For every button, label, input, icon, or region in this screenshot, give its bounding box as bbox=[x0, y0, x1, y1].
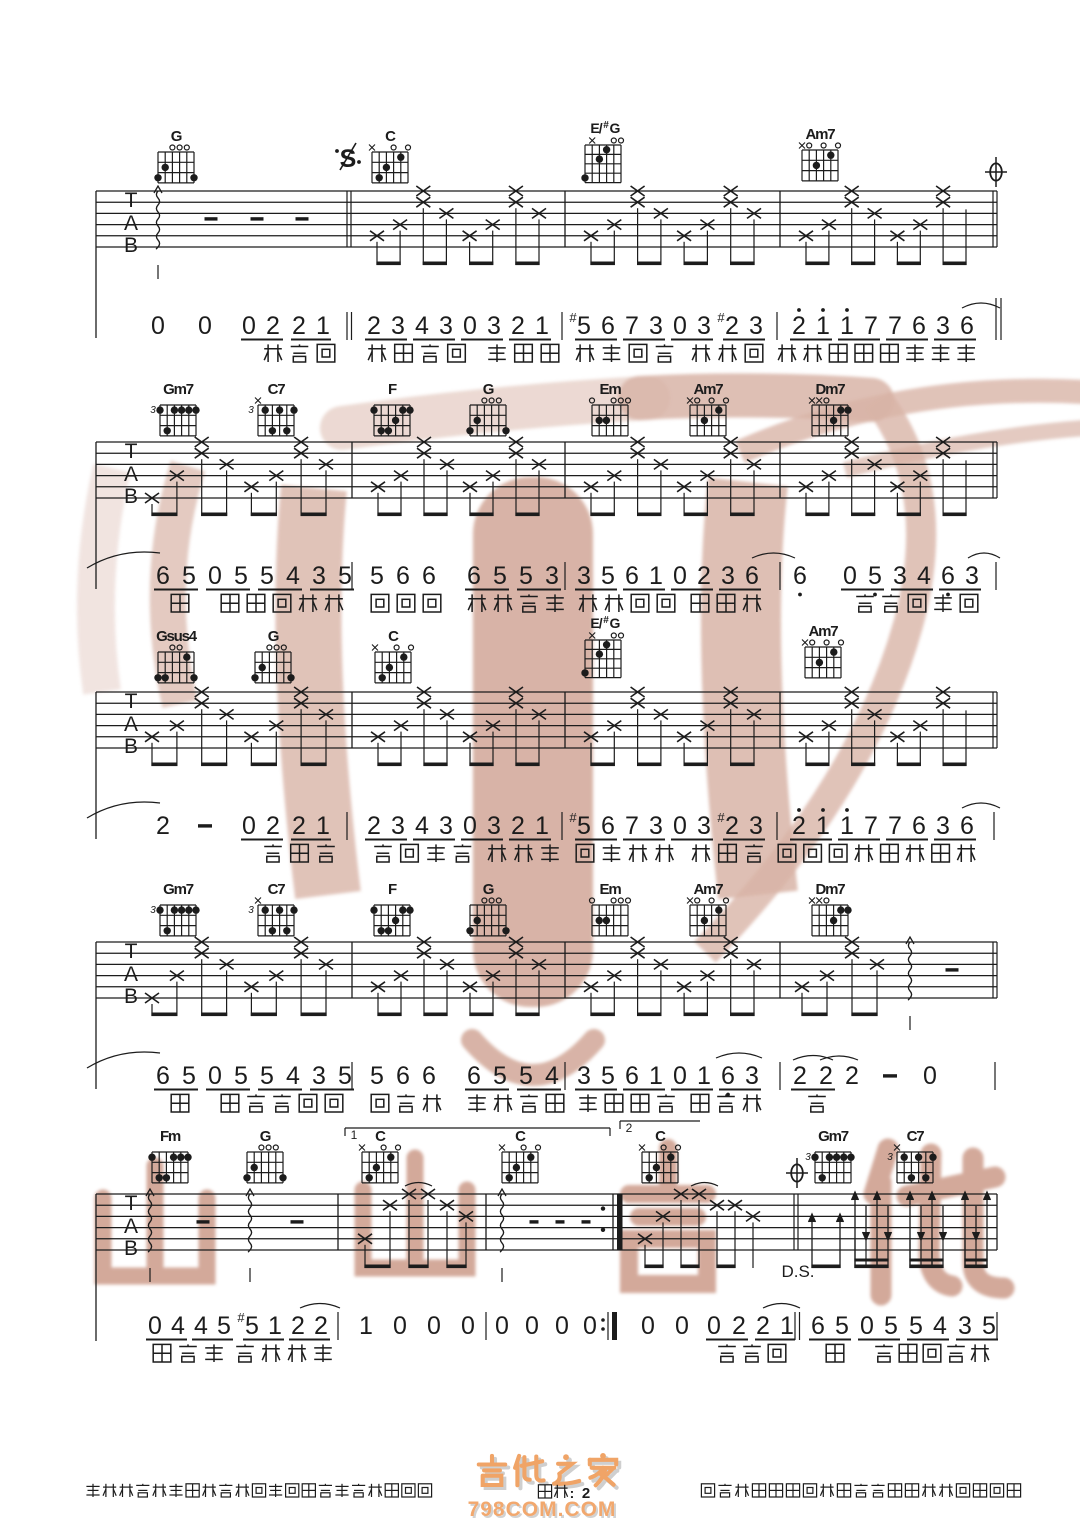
svg-text:0: 0 bbox=[242, 312, 256, 340]
svg-text:T: T bbox=[125, 440, 138, 463]
svg-text:6: 6 bbox=[912, 312, 926, 340]
svg-text:3: 3 bbox=[649, 812, 663, 840]
svg-text:Am7: Am7 bbox=[694, 381, 724, 398]
svg-text:#: # bbox=[237, 1310, 245, 1325]
svg-text:3: 3 bbox=[391, 312, 405, 340]
svg-text:3: 3 bbox=[487, 812, 501, 840]
svg-text:3: 3 bbox=[749, 812, 763, 840]
svg-text:0: 0 bbox=[463, 812, 477, 840]
svg-text:3: 3 bbox=[745, 1062, 759, 1090]
svg-text:3: 3 bbox=[150, 405, 156, 416]
svg-text:D.S.: D.S. bbox=[781, 1262, 814, 1281]
svg-text:5: 5 bbox=[182, 1062, 196, 1090]
svg-text:T: T bbox=[125, 940, 138, 963]
svg-text:5: 5 bbox=[909, 1312, 923, 1340]
svg-text:6: 6 bbox=[601, 312, 615, 340]
svg-text:1: 1 bbox=[535, 812, 549, 840]
svg-text:2: 2 bbox=[697, 562, 711, 590]
svg-text:F: F bbox=[388, 381, 397, 398]
svg-text:2: 2 bbox=[732, 1312, 746, 1340]
svg-text:3: 3 bbox=[312, 562, 326, 590]
svg-text:5: 5 bbox=[234, 1062, 248, 1090]
svg-text:1: 1 bbox=[535, 312, 549, 340]
svg-text:E/: E/ bbox=[590, 120, 602, 136]
svg-text:G: G bbox=[260, 1128, 271, 1145]
svg-text:0: 0 bbox=[393, 1312, 407, 1340]
svg-text:6: 6 bbox=[467, 1062, 481, 1090]
svg-text:4: 4 bbox=[194, 1312, 208, 1340]
svg-text:2: 2 bbox=[793, 1062, 807, 1090]
svg-text:4: 4 bbox=[286, 562, 300, 590]
svg-text:2: 2 bbox=[511, 312, 525, 340]
svg-text:6: 6 bbox=[721, 1062, 735, 1090]
svg-text:C: C bbox=[655, 1128, 666, 1145]
svg-text:3: 3 bbox=[887, 1152, 893, 1163]
svg-text:6: 6 bbox=[793, 562, 807, 590]
svg-text:5: 5 bbox=[234, 562, 248, 590]
svg-text:0: 0 bbox=[673, 312, 687, 340]
svg-text:4: 4 bbox=[415, 312, 429, 340]
svg-text:C7: C7 bbox=[268, 881, 286, 898]
svg-text:5: 5 bbox=[370, 1062, 384, 1090]
svg-text:3: 3 bbox=[312, 1062, 326, 1090]
svg-text:1: 1 bbox=[840, 812, 854, 840]
svg-text:7: 7 bbox=[888, 812, 902, 840]
svg-text:Fm: Fm bbox=[160, 1128, 181, 1145]
svg-text:G: G bbox=[483, 881, 494, 898]
svg-text:1: 1 bbox=[359, 1312, 373, 1340]
svg-text:G: G bbox=[171, 128, 182, 145]
svg-text:3: 3 bbox=[936, 312, 950, 340]
svg-text:Em: Em bbox=[600, 881, 622, 898]
svg-text:2: 2 bbox=[266, 812, 280, 840]
svg-text:2: 2 bbox=[626, 1121, 633, 1135]
svg-text:5: 5 bbox=[868, 562, 882, 590]
svg-text:5: 5 bbox=[338, 562, 352, 590]
svg-text:#: # bbox=[717, 310, 725, 325]
svg-text:0: 0 bbox=[641, 1312, 655, 1340]
svg-text:0: 0 bbox=[427, 1312, 441, 1340]
svg-text:3: 3 bbox=[749, 312, 763, 340]
svg-text:Gm7: Gm7 bbox=[163, 381, 194, 398]
svg-text:3: 3 bbox=[965, 562, 979, 590]
svg-text:4: 4 bbox=[545, 1062, 559, 1090]
svg-text:4: 4 bbox=[933, 1312, 947, 1340]
svg-text:3: 3 bbox=[150, 905, 156, 916]
svg-text:0: 0 bbox=[923, 1062, 937, 1090]
svg-text:#: # bbox=[569, 310, 577, 325]
svg-text:1: 1 bbox=[816, 312, 830, 340]
svg-text:Gm7: Gm7 bbox=[163, 881, 194, 898]
svg-text:6: 6 bbox=[422, 562, 436, 590]
svg-text:6: 6 bbox=[625, 562, 639, 590]
svg-text:1: 1 bbox=[816, 812, 830, 840]
svg-text:Dm7: Dm7 bbox=[816, 881, 846, 898]
svg-text:4: 4 bbox=[171, 1312, 185, 1340]
svg-text:3: 3 bbox=[697, 812, 711, 840]
svg-text:5: 5 bbox=[245, 1312, 259, 1340]
svg-text:2: 2 bbox=[511, 812, 525, 840]
svg-text:5: 5 bbox=[217, 1312, 231, 1340]
svg-text:F: F bbox=[388, 881, 397, 898]
svg-text:G: G bbox=[483, 381, 494, 398]
svg-text:T: T bbox=[125, 1192, 138, 1215]
svg-text:0: 0 bbox=[673, 562, 687, 590]
svg-text:0: 0 bbox=[583, 1312, 597, 1340]
svg-text:5: 5 bbox=[519, 1062, 533, 1090]
svg-text:5: 5 bbox=[493, 562, 507, 590]
svg-text:2: 2 bbox=[291, 1312, 305, 1340]
svg-text:2: 2 bbox=[367, 312, 381, 340]
svg-text:A: A bbox=[124, 463, 138, 486]
svg-text:#: # bbox=[569, 810, 577, 825]
svg-text:A: A bbox=[124, 963, 138, 986]
svg-text:0: 0 bbox=[843, 562, 857, 590]
svg-text:Em: Em bbox=[600, 381, 622, 398]
svg-text:3: 3 bbox=[893, 562, 907, 590]
svg-text:S: S bbox=[340, 145, 357, 173]
svg-text:0: 0 bbox=[208, 1062, 222, 1090]
svg-text:2: 2 bbox=[845, 1062, 859, 1090]
svg-text:2: 2 bbox=[725, 312, 739, 340]
svg-text:C7: C7 bbox=[268, 381, 286, 398]
svg-text:#: # bbox=[603, 615, 609, 626]
svg-text:3: 3 bbox=[649, 312, 663, 340]
svg-text:Am7: Am7 bbox=[809, 623, 839, 640]
svg-text:5: 5 bbox=[577, 812, 591, 840]
svg-text:6: 6 bbox=[912, 812, 926, 840]
svg-text:3: 3 bbox=[487, 312, 501, 340]
svg-text:6: 6 bbox=[625, 1062, 639, 1090]
svg-text:Am7: Am7 bbox=[694, 881, 724, 898]
svg-text:5: 5 bbox=[370, 562, 384, 590]
svg-text:3: 3 bbox=[577, 1062, 591, 1090]
svg-text:0: 0 bbox=[673, 812, 687, 840]
svg-text:B: B bbox=[124, 985, 138, 1008]
svg-text:5: 5 bbox=[519, 562, 533, 590]
svg-text:5: 5 bbox=[493, 1062, 507, 1090]
svg-text:3: 3 bbox=[958, 1312, 972, 1340]
svg-text:2: 2 bbox=[156, 812, 170, 840]
svg-text:3: 3 bbox=[805, 1152, 811, 1163]
svg-text:5: 5 bbox=[601, 1062, 615, 1090]
svg-text:G: G bbox=[610, 120, 621, 136]
svg-text:Dm7: Dm7 bbox=[816, 381, 846, 398]
svg-text:0: 0 bbox=[208, 562, 222, 590]
svg-text:3: 3 bbox=[439, 812, 453, 840]
svg-text:7: 7 bbox=[625, 312, 639, 340]
svg-text:1: 1 bbox=[316, 312, 330, 340]
svg-text:0: 0 bbox=[555, 1312, 569, 1340]
svg-text:2: 2 bbox=[792, 812, 806, 840]
svg-text:1: 1 bbox=[268, 1312, 282, 1340]
svg-text:3: 3 bbox=[248, 905, 254, 916]
svg-text:6: 6 bbox=[156, 562, 170, 590]
svg-text:7: 7 bbox=[864, 812, 878, 840]
svg-text:6: 6 bbox=[396, 1062, 410, 1090]
svg-text:T: T bbox=[125, 690, 138, 713]
svg-text:7: 7 bbox=[625, 812, 639, 840]
svg-text:6: 6 bbox=[960, 812, 974, 840]
svg-text:G: G bbox=[610, 615, 621, 631]
svg-text:2: 2 bbox=[314, 1312, 328, 1340]
svg-text:C: C bbox=[375, 1128, 386, 1145]
svg-text:B: B bbox=[124, 1237, 138, 1260]
svg-text:E/: E/ bbox=[590, 615, 602, 631]
svg-text:1: 1 bbox=[351, 1128, 358, 1142]
svg-text:1: 1 bbox=[697, 1062, 711, 1090]
svg-text:3: 3 bbox=[721, 562, 735, 590]
svg-text:C: C bbox=[388, 628, 399, 645]
svg-text:0: 0 bbox=[707, 1312, 721, 1340]
svg-text:4: 4 bbox=[286, 1062, 300, 1090]
svg-text:6: 6 bbox=[745, 562, 759, 590]
svg-text:6: 6 bbox=[396, 562, 410, 590]
svg-text:5: 5 bbox=[577, 312, 591, 340]
svg-text:3: 3 bbox=[697, 312, 711, 340]
svg-text:5: 5 bbox=[338, 1062, 352, 1090]
svg-text:0: 0 bbox=[860, 1312, 874, 1340]
svg-text:5: 5 bbox=[260, 1062, 274, 1090]
svg-text:A: A bbox=[124, 713, 138, 736]
svg-text:B: B bbox=[124, 234, 138, 257]
svg-text:0: 0 bbox=[461, 1312, 475, 1340]
svg-text:#: # bbox=[603, 120, 609, 131]
svg-text:5: 5 bbox=[182, 562, 196, 590]
svg-text:5: 5 bbox=[260, 562, 274, 590]
svg-text:Gm7: Gm7 bbox=[818, 1128, 849, 1145]
svg-text:2: 2 bbox=[819, 1062, 833, 1090]
svg-text:5: 5 bbox=[835, 1312, 849, 1340]
svg-text:6: 6 bbox=[960, 312, 974, 340]
svg-text:3: 3 bbox=[391, 812, 405, 840]
svg-text:2: 2 bbox=[725, 812, 739, 840]
svg-text:C7: C7 bbox=[907, 1128, 925, 1145]
svg-text:2: 2 bbox=[292, 312, 306, 340]
svg-text:1: 1 bbox=[649, 562, 663, 590]
svg-text:5: 5 bbox=[601, 562, 615, 590]
svg-text:6: 6 bbox=[467, 562, 481, 590]
svg-text:C: C bbox=[385, 128, 396, 145]
svg-text:6: 6 bbox=[422, 1062, 436, 1090]
svg-text:3: 3 bbox=[936, 812, 950, 840]
svg-text:0: 0 bbox=[151, 312, 165, 340]
svg-text:6: 6 bbox=[601, 812, 615, 840]
svg-text:7: 7 bbox=[864, 312, 878, 340]
svg-text:A: A bbox=[124, 212, 138, 235]
svg-text:6: 6 bbox=[811, 1312, 825, 1340]
svg-text:0: 0 bbox=[495, 1312, 509, 1340]
svg-text:1: 1 bbox=[649, 1062, 663, 1090]
svg-text:0: 0 bbox=[242, 812, 256, 840]
svg-text:3: 3 bbox=[545, 562, 559, 590]
svg-text:#: # bbox=[717, 810, 725, 825]
svg-text:6: 6 bbox=[941, 562, 955, 590]
svg-text:4: 4 bbox=[415, 812, 429, 840]
svg-text:6: 6 bbox=[156, 1062, 170, 1090]
svg-text:1: 1 bbox=[316, 812, 330, 840]
svg-text:0: 0 bbox=[673, 1062, 687, 1090]
svg-text:2: 2 bbox=[292, 812, 306, 840]
svg-text:2: 2 bbox=[266, 312, 280, 340]
svg-text:T: T bbox=[125, 189, 138, 212]
svg-text:B: B bbox=[124, 485, 138, 508]
svg-text:G: G bbox=[268, 628, 279, 645]
svg-text:B: B bbox=[124, 735, 138, 758]
svg-text:Gsus4: Gsus4 bbox=[156, 628, 198, 645]
svg-text:0: 0 bbox=[198, 312, 212, 340]
svg-text:C: C bbox=[515, 1128, 526, 1145]
svg-text:Am7: Am7 bbox=[806, 126, 836, 143]
svg-text:3: 3 bbox=[577, 562, 591, 590]
svg-text:2: 2 bbox=[756, 1312, 770, 1340]
svg-text:4: 4 bbox=[917, 562, 931, 590]
svg-text:2: 2 bbox=[367, 812, 381, 840]
svg-text:A: A bbox=[124, 1215, 138, 1238]
svg-text:1: 1 bbox=[840, 312, 854, 340]
svg-text:0: 0 bbox=[675, 1312, 689, 1340]
svg-text:7: 7 bbox=[888, 312, 902, 340]
svg-text:5: 5 bbox=[982, 1312, 996, 1340]
svg-text:0: 0 bbox=[148, 1312, 162, 1340]
svg-text:798COM.COM: 798COM.COM bbox=[468, 1498, 617, 1521]
svg-text:2: 2 bbox=[792, 312, 806, 340]
svg-text:3: 3 bbox=[439, 312, 453, 340]
svg-text:0: 0 bbox=[525, 1312, 539, 1340]
svg-text:1: 1 bbox=[780, 1312, 794, 1340]
svg-text:3: 3 bbox=[248, 405, 254, 416]
svg-text:0: 0 bbox=[463, 312, 477, 340]
svg-text:5: 5 bbox=[884, 1312, 898, 1340]
